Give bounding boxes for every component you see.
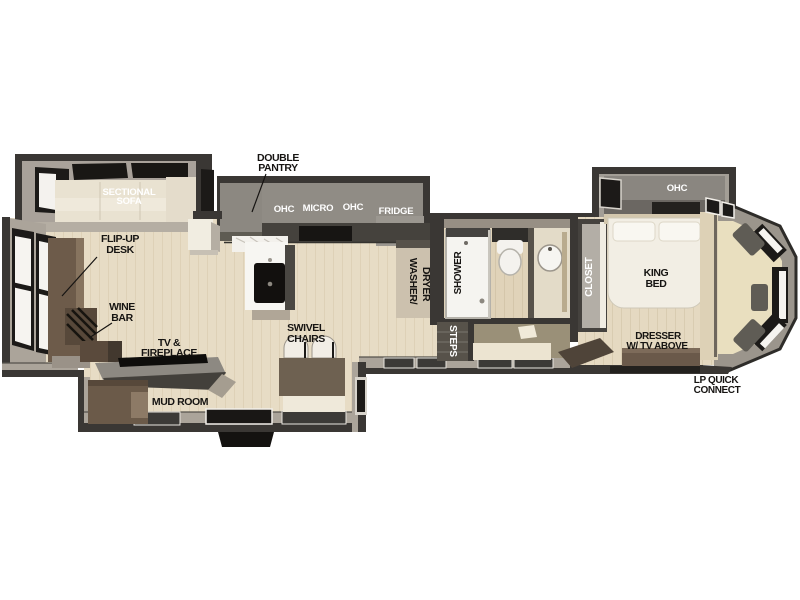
svg-text:OHC: OHC [274,204,295,215]
svg-text:CHAIRS: CHAIRS [287,333,325,345]
svg-text:CLOSET: CLOSET [584,257,595,296]
svg-text:FRIDGE: FRIDGE [379,206,414,217]
svg-text:DESK: DESK [106,244,134,256]
svg-text:OHC: OHC [343,202,364,213]
svg-text:W/ TV ABOVE: W/ TV ABOVE [626,341,688,352]
svg-text:MICRO: MICRO [303,203,334,214]
svg-text:MUD ROOM: MUD ROOM [152,396,209,408]
svg-text:FIREPLACE: FIREPLACE [141,347,197,359]
svg-text:BED: BED [646,278,668,290]
svg-text:OHC: OHC [667,183,688,194]
svg-text:CONNECT: CONNECT [694,385,741,396]
svg-text:STEPS: STEPS [447,325,458,357]
svg-text:SOFA: SOFA [116,196,141,207]
svg-text:PANTRY: PANTRY [258,162,298,174]
svg-text:BAR: BAR [111,312,133,324]
svg-text:SHOWER: SHOWER [453,251,464,295]
svg-text:WASHER/: WASHER/ [407,258,419,305]
